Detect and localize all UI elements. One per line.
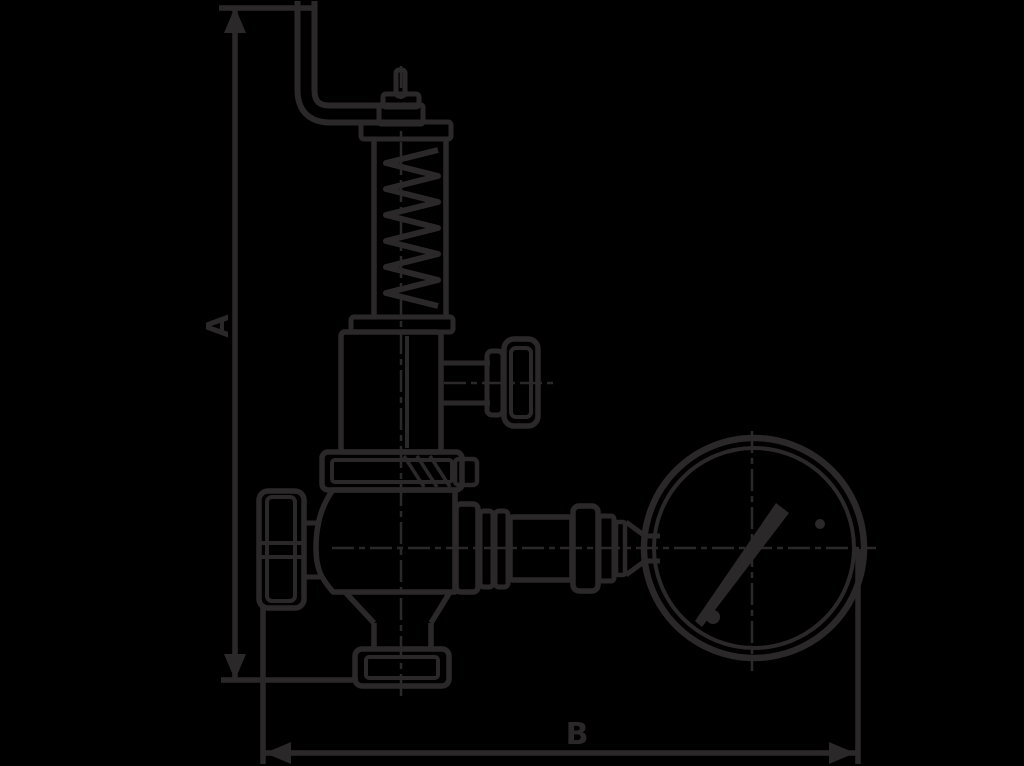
valve-gauge-diagram: A B (0, 0, 1024, 766)
drawing-canvas: A B (0, 0, 1024, 766)
arrowhead-left (265, 742, 291, 764)
bonnet (341, 332, 441, 452)
gauge-dot-right (815, 519, 825, 529)
gauge-needle (695, 503, 789, 627)
dimension-a-label: A (201, 314, 236, 338)
outlet-tube (374, 623, 431, 650)
left-hand-knob (259, 491, 304, 608)
centerlines (332, 66, 876, 698)
lifting-lever-bracket (306, 1, 406, 114)
arrowhead-down (224, 654, 246, 680)
upper-flange (322, 452, 477, 490)
coil-spring (386, 150, 438, 306)
arrowhead-right (829, 742, 855, 764)
outlet-taper (345, 592, 450, 623)
gauge-dot-left (706, 610, 720, 624)
dimension-b-label: B (566, 717, 589, 752)
valve-body (304, 490, 455, 650)
arrowhead-up (224, 7, 246, 33)
